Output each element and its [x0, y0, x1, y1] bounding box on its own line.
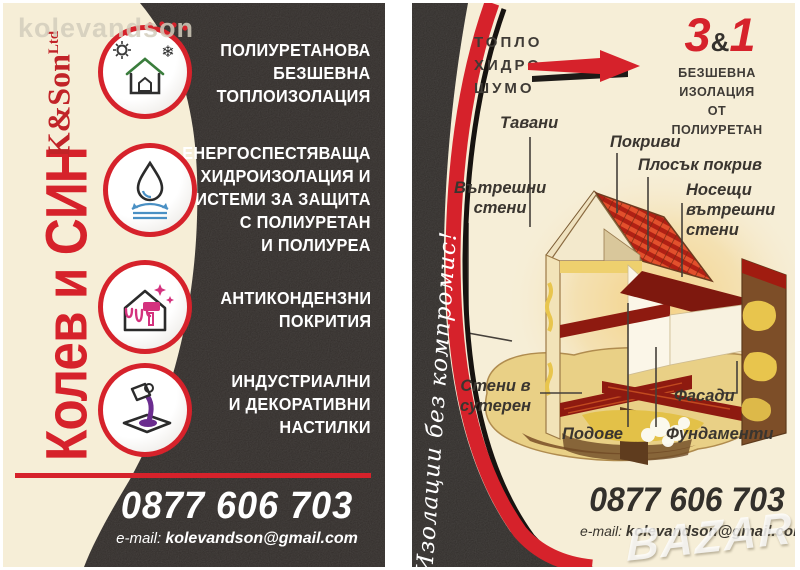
badge-three: 3: [684, 8, 710, 61]
photo-watermark: kolevandson: [18, 13, 194, 44]
label-flat-roof: Плосък покрив: [638, 155, 762, 175]
label-ceilings: Тавани: [500, 113, 558, 133]
label-basement-walls: Стени в сутерен: [448, 376, 543, 416]
label-load-bearing-walls: Носещи вътрешни стени: [686, 180, 775, 240]
service-line: С ПОЛИУРЕТАН: [182, 211, 371, 234]
service-line: БЕЗШЕВНА: [217, 62, 371, 85]
service-line: И ПОЛИУРЕА: [182, 234, 371, 257]
badge-ampersand: &: [711, 27, 730, 57]
label-line: Покриви: [610, 132, 681, 152]
paint-roller-house-icon: [110, 272, 180, 342]
label-line: Вътрешни: [454, 178, 546, 198]
label-roofs: Покриви: [610, 132, 681, 152]
red-arrow-icon: [528, 49, 646, 89]
badge-one: 1: [729, 8, 755, 61]
service-line: НАСТИЛКИ: [229, 416, 371, 439]
svg-text:❄: ❄: [161, 44, 174, 61]
email-label: e-mail:: [116, 530, 161, 547]
service-line: ПОЛИУРЕТАНОВА: [217, 39, 371, 62]
service-text-thermal: ПОЛИУРЕТАНОВА БЕЗШЕВНА ТОПЛОИЗОЛАЦИЯ: [217, 39, 371, 108]
brand-latin-text: K&Son: [41, 54, 77, 157]
flyer-photo: kolevandson Колев и СИН K&SonLtd ❄: [0, 0, 800, 570]
pouring-floor-icon: [110, 375, 180, 445]
service-line: ТОПЛОИЗОЛАЦИЯ: [217, 85, 371, 108]
service-line: ПОКРИТИЯ: [220, 310, 371, 333]
label-line: Фундаменти: [666, 424, 774, 444]
label-line: Носещи: [686, 180, 775, 200]
phone-number: 0877 606 703: [105, 485, 369, 528]
red-divider-line: [15, 473, 371, 478]
email-line: e-mail: kolevandson@gmail.com: [98, 530, 376, 548]
service-line: АНТИКОНДЕНЗНИ: [220, 287, 371, 310]
label-foundations: Фундаменти: [666, 424, 774, 444]
service-line: ЕНЕРГОСПЕСТЯВАЩА: [182, 142, 371, 165]
label-line: Плосък покрив: [638, 155, 762, 175]
service-line: И ДЕКОРАТИВНИ: [229, 393, 371, 416]
email-label: e-mail:: [580, 523, 622, 539]
service-line: ИНДУСТРИАЛНИ: [229, 370, 371, 393]
water-drop-icon: [115, 155, 185, 225]
label-inner-walls: Вътрешни стени: [454, 178, 546, 218]
front-card: kolevandson Колев и СИН K&SonLtd ❄: [3, 3, 385, 567]
label-line: сутерен: [448, 396, 543, 416]
label-line: Тавани: [500, 113, 558, 133]
headline-line: БЕЗШЕВНА ИЗОЛАЦИЯ: [646, 63, 788, 101]
label-line: вътрешни: [686, 200, 775, 220]
service-icon-circle: [103, 143, 197, 237]
service-text-hydro: ЕНЕРГОСПЕСТЯВАЩА ХИДРОИЗОЛАЦИЯ И СИСТЕМИ…: [182, 142, 371, 257]
service-text-flooring: ИНДУСТРИАЛНИ И ДЕКОРАТИВНИ НАСТИЛКИ: [229, 370, 371, 439]
label-line: стени: [454, 198, 546, 218]
label-line: Фасади: [674, 386, 735, 406]
service-line: СИСТЕМИ ЗА ЗАЩИТА: [182, 188, 371, 211]
label-facades: Фасади: [674, 386, 735, 406]
back-card: ТОПЛО ХИДРО ШУМО 3&1 БЕЗШЕВНА ИЗОЛАЦИЯ О…: [412, 3, 795, 567]
label-line: Подове: [562, 424, 623, 444]
label-line: стени: [686, 220, 775, 240]
service-text-anticondensation: АНТИКОНДЕНЗНИ ПОКРИТИЯ: [220, 287, 371, 333]
service-line: ХИДРОИЗОЛАЦИЯ И: [182, 165, 371, 188]
label-line: Стени в: [448, 376, 543, 396]
headline-line: ОТ: [646, 101, 788, 120]
headline: БЕЗШЕВНА ИЗОЛАЦИЯ ОТ ПОЛИУРЕТАН: [646, 63, 788, 139]
email-address: kolevandson@gmail.com: [165, 530, 358, 547]
service-icon-circle: [98, 260, 192, 354]
thermal-insulation-house-icon: ❄: [110, 37, 180, 107]
three-and-one-badge: 3&1: [660, 7, 780, 62]
label-floors: Подове: [562, 424, 623, 444]
service-icon-circle: [98, 363, 192, 457]
